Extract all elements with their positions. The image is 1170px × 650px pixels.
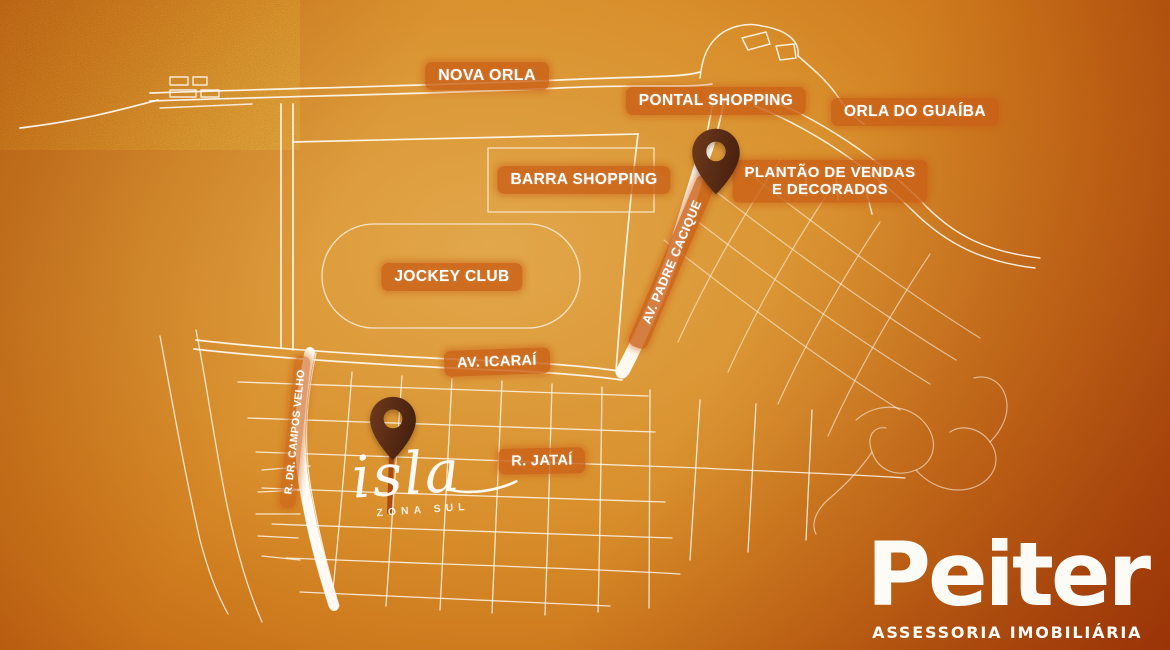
isla-logo: isla ZONA SUL — [340, 441, 475, 522]
label-jockey-club: JOCKEY CLUB — [381, 263, 522, 291]
sales-office-pin — [690, 127, 742, 196]
label-r-jatai: R. JATAÍ — [498, 447, 586, 475]
label-av-padre-cacique: AV. PADRE CACIQUE — [627, 173, 718, 351]
brand-name: Peiter — [867, 531, 1149, 619]
grain-texture — [0, 0, 300, 150]
main-roads — [20, 72, 725, 380]
isla-swash-icon — [448, 473, 519, 498]
label-r-dr-campos-velho: R. DR. CAMPOS VELHO — [279, 355, 311, 509]
label-plantao-line2: E DECORADOS — [745, 181, 916, 198]
zona-sul-grid — [238, 372, 905, 615]
label-pontal-shopping: PONTAL SHOPPING — [626, 87, 806, 115]
brand-tagline: ASSESSORIA IMOBILIÁRIA — [867, 623, 1149, 642]
pontal-shoreline — [700, 25, 1040, 269]
marina-docks — [160, 77, 252, 108]
label-plantao-line1: PLANTÃO DE VENDAS — [745, 164, 916, 181]
label-plantao-vendas: PLANTÃO DE VENDAS E DECORADOS — [733, 160, 928, 203]
label-av-icarai: AV. ICARAÍ — [444, 347, 551, 377]
east-network — [664, 160, 1007, 534]
label-nova-orla: NOVA ORLA — [425, 62, 549, 90]
map-stage: NOVA ORLA PONTAL SHOPPING ORLA DO GUAÍBA… — [0, 0, 1170, 650]
label-barra-shopping: BARRA SHOPPING — [497, 166, 670, 194]
label-orla-do-guaiba: ORLA DO GUAÍBA — [831, 98, 999, 126]
brand-block: Peiter ASSESSORIA IMOBILIÁRIA — [867, 531, 1149, 642]
